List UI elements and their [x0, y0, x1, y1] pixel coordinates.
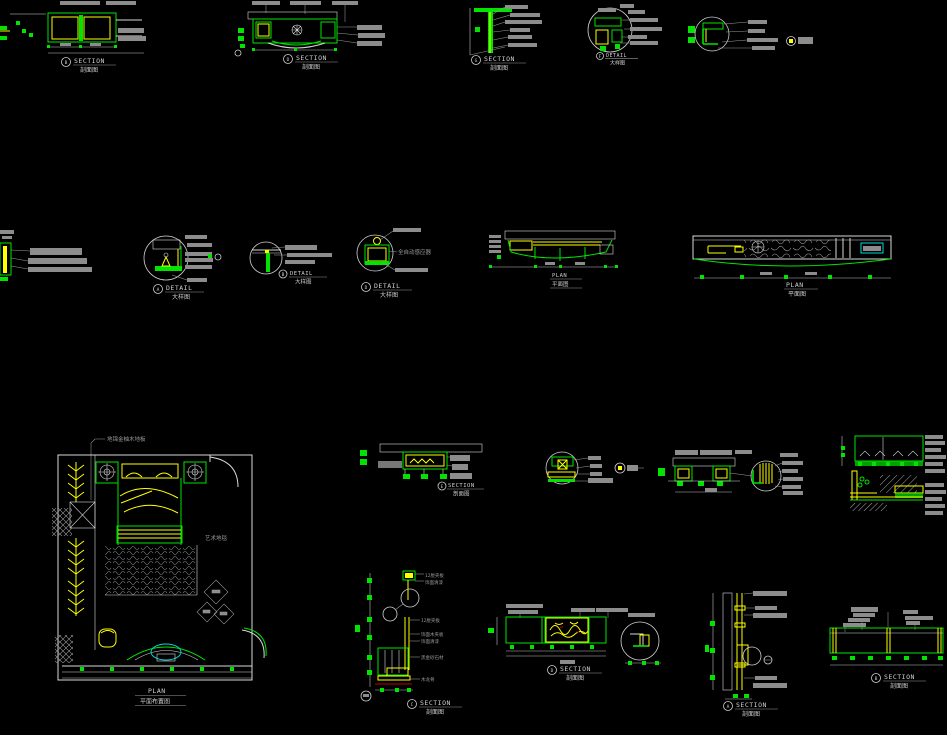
annotation-bar	[118, 28, 144, 33]
svg-text:C: C	[411, 702, 414, 708]
laminate-stripes	[760, 463, 772, 484]
svg-text:黑金砂石材: 黑金砂石材	[421, 654, 444, 661]
door-arc-top	[210, 457, 238, 487]
svg-text:E: E	[441, 484, 444, 490]
detail-row3-plan	[658, 450, 803, 495]
tv-console	[127, 644, 205, 661]
svg-text:D: D	[551, 668, 554, 674]
svg-text:剖面图: 剖面图	[490, 64, 508, 72]
door-arc-bottom	[242, 630, 264, 658]
drawing-sheet: B SECTION 剖面图 D SECTION 剖面图	[0, 0, 947, 735]
svg-text:SECTION: SECTION	[420, 699, 451, 707]
svg-text:剖面图: 剖面图	[453, 490, 470, 498]
detail-bottom-panel-elevation: D SECTION 剖面图	[488, 604, 661, 682]
svg-text:大样图: 大样图	[380, 291, 398, 299]
detail-top-circle-b	[688, 17, 813, 51]
title-letter: B	[65, 60, 68, 66]
svg-text:剖面图: 剖面图	[302, 63, 320, 71]
svg-text:D: D	[287, 57, 290, 63]
drawing-title-bot2: D SECTION 剖面图	[548, 665, 603, 682]
svg-text:DETAIL: DETAIL	[374, 282, 400, 290]
drawing-title-bot4: B SECTION 剖面图	[872, 673, 927, 690]
svg-text:平面图: 平面图	[552, 280, 569, 288]
chair	[99, 629, 116, 647]
svg-text:A: A	[727, 704, 730, 710]
svg-text:12厘夹板: 12厘夹板	[425, 572, 444, 579]
detail-mid-circle-1: A DETAIL 大样图	[144, 235, 221, 301]
detail-mid-circle-3: 全自动感应器 D DETAIL 大样图	[357, 228, 432, 299]
svg-text:大样图: 大样图	[172, 293, 190, 301]
svg-text:剖面图: 剖面图	[890, 682, 908, 690]
svg-text:SECTION: SECTION	[884, 673, 915, 681]
svg-text:平面图: 平面图	[788, 291, 806, 298]
annotation-bar	[60, 1, 100, 5]
detail-row3-section: E SECTION 剖面图	[360, 444, 484, 498]
drawing-title-bot1: C SECTION 剖面图	[408, 699, 463, 716]
svg-text:PLAN: PLAN	[148, 687, 166, 695]
title-en: SECTION	[74, 57, 105, 65]
drawing-title-mid3: D DETAIL 大样图	[362, 282, 413, 299]
carpet	[105, 545, 197, 595]
cad-model-space: B SECTION 剖面图 D SECTION 剖面图	[0, 0, 947, 735]
svg-text:F: F	[599, 54, 602, 60]
detail-top-left-section: B SECTION 剖面图	[0, 1, 146, 74]
svg-text:G: G	[475, 58, 478, 64]
dim-ticks	[367, 578, 372, 675]
svg-text:饰面清漆: 饰面清漆	[421, 638, 439, 645]
svg-text:SECTION: SECTION	[736, 701, 767, 709]
drawing-title-mid1: A DETAIL 大样图	[154, 284, 205, 301]
svg-text:SECTION: SECTION	[296, 54, 327, 62]
annotation-stack-right	[925, 435, 946, 515]
detail-top-circle-a: F DETAIL 大样图	[588, 4, 662, 67]
detail-bottom-band-elevation: B SECTION 剖面图	[830, 607, 943, 690]
annotation-bar	[118, 36, 146, 41]
drawing-title-mid5: PLAN 平面图	[784, 281, 818, 298]
svg-text:平面布置图: 平面布置图	[140, 698, 170, 706]
tick-row	[510, 645, 594, 649]
drawing-title-bot3: A SECTION 剖面图	[724, 701, 779, 718]
detail-bottom-vertical-section: 12厘夹板 饰面清漆 12厘夹板 饰面木夹板 饰面清漆 黑金砂石材 木龙骨 C …	[355, 571, 462, 716]
svg-text:12厘夹板: 12厘夹板	[421, 617, 440, 624]
detail-mid-circle-2: B DETAIL 大样图	[250, 242, 332, 286]
detail-mid-long-plan: PLAN 平面图	[693, 236, 891, 298]
svg-text:大样图: 大样图	[295, 278, 312, 286]
diamond-markers	[197, 580, 234, 624]
svg-text:剖面图: 剖面图	[566, 674, 584, 682]
svg-text:A: A	[157, 287, 160, 293]
detail-bottom-wall-section: A SECTION 剖面图	[705, 591, 787, 718]
drawing-title-plan: PLAN 平面布置图	[135, 687, 186, 706]
note-sensor: 全自动感应器	[398, 248, 432, 256]
drawing-title-top1: B SECTION 剖面图	[62, 57, 117, 74]
nightstand-left	[96, 462, 118, 483]
bedroom-floor-plan: 地锦金柚木地板	[52, 435, 266, 706]
title-cn: 剖面图	[80, 66, 98, 74]
tick-row	[832, 656, 943, 660]
drawing-title-top4: F DETAIL 大样图	[597, 53, 639, 67]
svg-text:SECTION: SECTION	[560, 665, 591, 673]
svg-text:PLAN: PLAN	[552, 273, 567, 279]
svg-text:DETAIL: DETAIL	[606, 53, 627, 59]
svg-text:D: D	[365, 285, 368, 291]
wall-ticks	[80, 667, 234, 671]
svg-text:饰面木夹板: 饰面木夹板	[421, 631, 444, 638]
svg-text:木龙骨: 木龙骨	[421, 676, 435, 683]
svg-text:剖面图: 剖面图	[742, 710, 760, 718]
svg-text:饰面清漆: 饰面清漆	[425, 579, 443, 586]
svg-text:PLAN: PLAN	[786, 281, 804, 289]
note-floor: 地锦金柚木地板	[107, 435, 146, 443]
svg-text:剖面图: 剖面图	[426, 708, 444, 716]
drawing-title-top2: D SECTION 剖面图	[284, 54, 339, 71]
drawing-title-mid2: B DETAIL 大样图	[279, 270, 327, 286]
carved-panel-ornament	[550, 622, 588, 637]
nightstand-right	[184, 462, 206, 483]
detail-row3-circle	[546, 452, 644, 484]
detail-row3-right-edge	[841, 435, 946, 515]
svg-text:DETAIL: DETAIL	[166, 284, 192, 292]
drawing-title-mid4: PLAN 平面图	[550, 273, 582, 288]
bed	[117, 464, 182, 545]
svg-text:SECTION: SECTION	[484, 55, 515, 63]
detail-mid-left-edge	[0, 230, 92, 281]
detail-mid-curved-section: PLAN 平面图	[489, 231, 618, 288]
svg-text:大样图: 大样图	[610, 60, 625, 67]
detail-top-vertical-section: G SECTION 剖面图	[470, 5, 542, 72]
drawing-title-row3a: E SECTION 剖面图	[438, 482, 484, 498]
drawing-title-top3: G SECTION 剖面图	[472, 55, 527, 72]
svg-text:SECTION: SECTION	[448, 483, 475, 489]
detail-top-ceiling-section: D SECTION 剖面图	[235, 1, 385, 71]
band-verticals	[833, 628, 941, 653]
note-carpet: 艺术地毯	[205, 534, 228, 542]
svg-text:DETAIL: DETAIL	[290, 271, 313, 277]
wardrobe-hangers	[68, 462, 84, 616]
annotation-bar	[106, 1, 136, 5]
svg-text:B: B	[282, 272, 285, 278]
svg-text:B: B	[875, 676, 878, 682]
